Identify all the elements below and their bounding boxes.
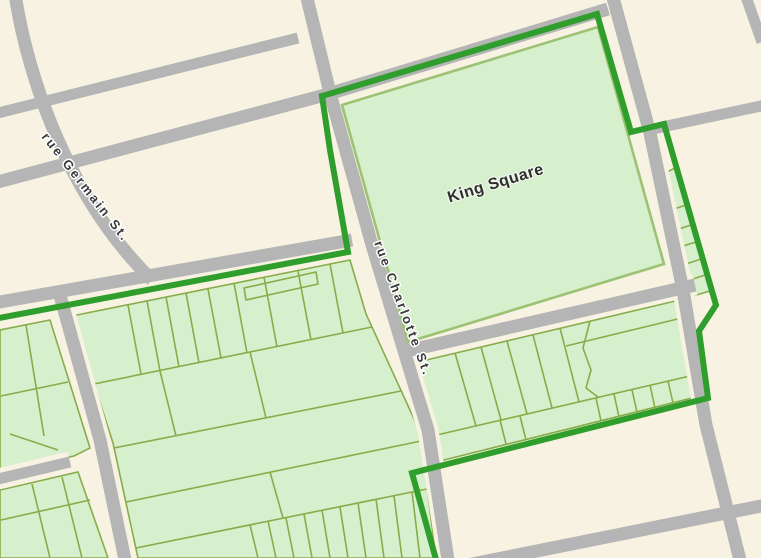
map-canvas: King Square rue Germain St. rue Charlott… <box>0 0 761 558</box>
map-viewport[interactable]: King Square rue Germain St. rue Charlott… <box>0 0 761 558</box>
